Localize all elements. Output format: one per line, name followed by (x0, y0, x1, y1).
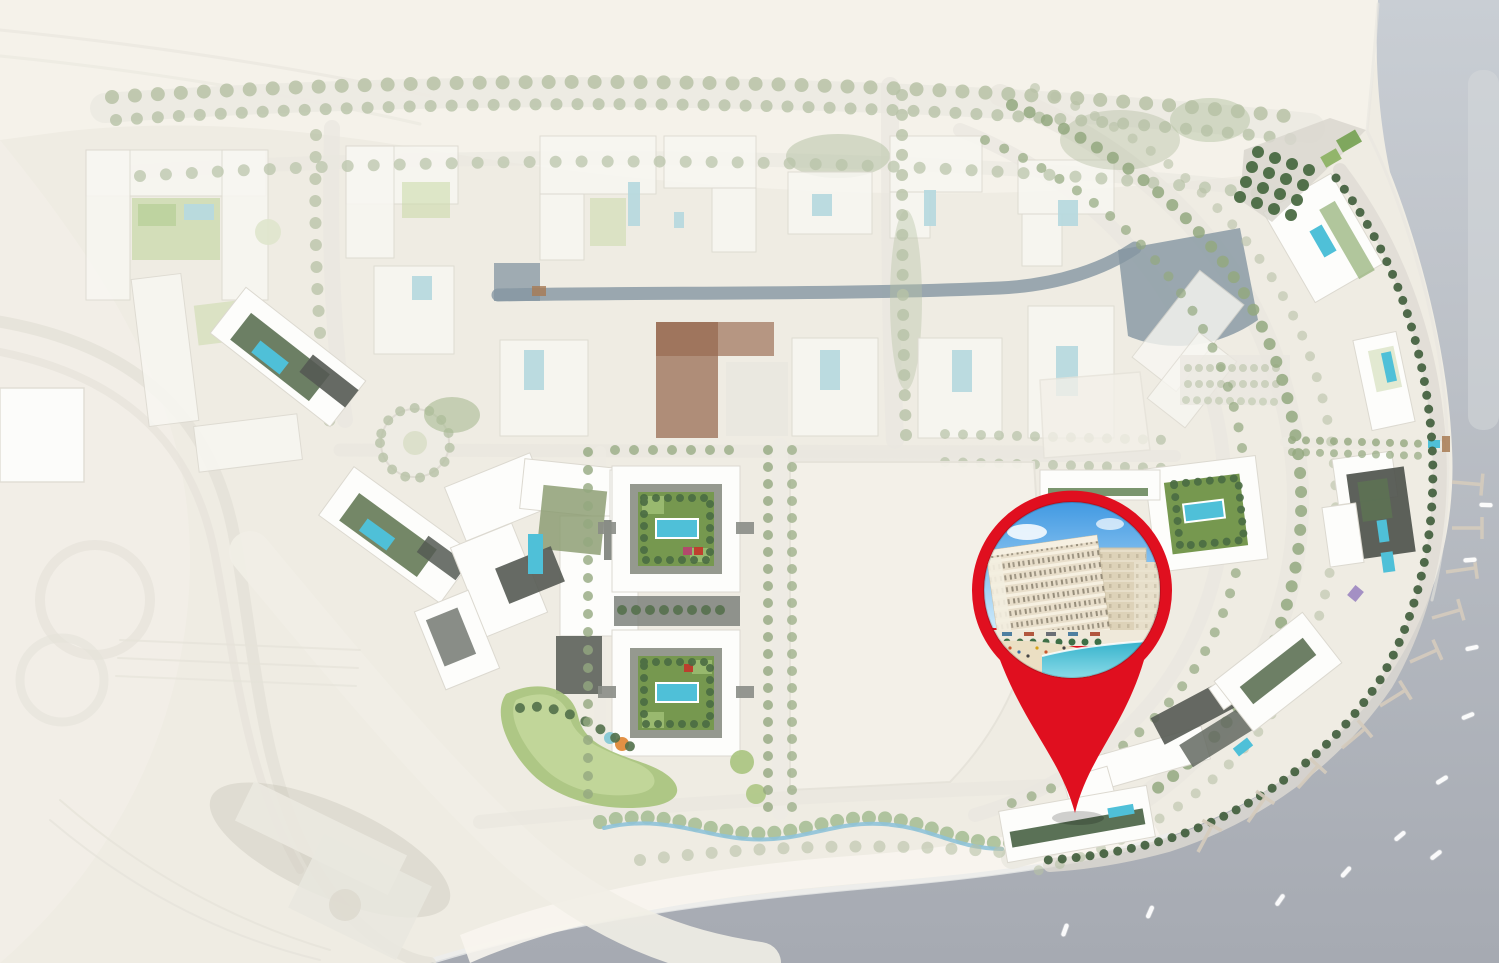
photo-palm (1082, 639, 1089, 646)
roundabout-garden (403, 431, 427, 455)
lawn (590, 198, 626, 246)
garden-circle (255, 219, 281, 245)
canal-deck (532, 286, 546, 296)
green-island (730, 750, 754, 774)
pool (656, 683, 698, 702)
cloud (1096, 518, 1124, 530)
boat (1463, 557, 1477, 563)
photo-awning (1046, 632, 1056, 636)
photo-awning (1002, 632, 1012, 636)
parking-lot (726, 362, 788, 436)
pool (184, 204, 214, 220)
pool (674, 212, 684, 228)
pool (656, 519, 698, 538)
map-features (0, 0, 1499, 963)
lawn (138, 204, 176, 226)
building (890, 136, 982, 192)
photo-awning (1024, 632, 1034, 636)
roof-dark (556, 636, 602, 694)
grove (424, 397, 480, 433)
garden (537, 485, 607, 555)
photo-person (1008, 646, 1011, 649)
building (712, 188, 756, 252)
site-plan-canvas (0, 0, 1499, 963)
hotel-tower (329, 889, 361, 921)
building (1022, 214, 1062, 266)
pool (628, 182, 640, 226)
roof-garden (1357, 478, 1392, 522)
terracotta-building (656, 322, 774, 356)
pool (1058, 200, 1078, 226)
entry-bar (598, 686, 616, 698)
grove (786, 134, 890, 178)
parking-trees (1186, 400, 1280, 402)
sandbar (1468, 70, 1499, 430)
pool (820, 350, 840, 390)
pool (924, 190, 936, 226)
pool (412, 276, 432, 300)
pool (812, 194, 832, 216)
photo-palm (1095, 639, 1102, 646)
cloud (1007, 524, 1047, 540)
photo-awning (1090, 632, 1100, 636)
photo-person (1062, 646, 1065, 649)
pavilion (683, 547, 692, 555)
pool (1183, 500, 1225, 523)
photo-person (1044, 650, 1047, 653)
kiosk (1442, 436, 1450, 452)
photo-palm (1069, 639, 1076, 646)
green-island (746, 784, 766, 804)
photo-person (1035, 646, 1038, 649)
pool (524, 350, 544, 390)
entry-bar (598, 522, 616, 534)
masterplan-map (0, 0, 1499, 963)
photo-person (1017, 650, 1020, 653)
photo-person (1026, 654, 1029, 657)
pavilion (694, 547, 703, 555)
building (0, 388, 84, 482)
photo-awning (1068, 632, 1078, 636)
boat (1479, 502, 1493, 507)
entry-bar (736, 522, 754, 534)
lawn (402, 182, 450, 218)
pin-shadow (1052, 811, 1104, 825)
entry-bar (736, 686, 754, 698)
building (540, 194, 584, 260)
building (86, 150, 130, 300)
vacant-lot (1040, 372, 1150, 458)
pool (952, 350, 972, 392)
pool (528, 534, 543, 574)
